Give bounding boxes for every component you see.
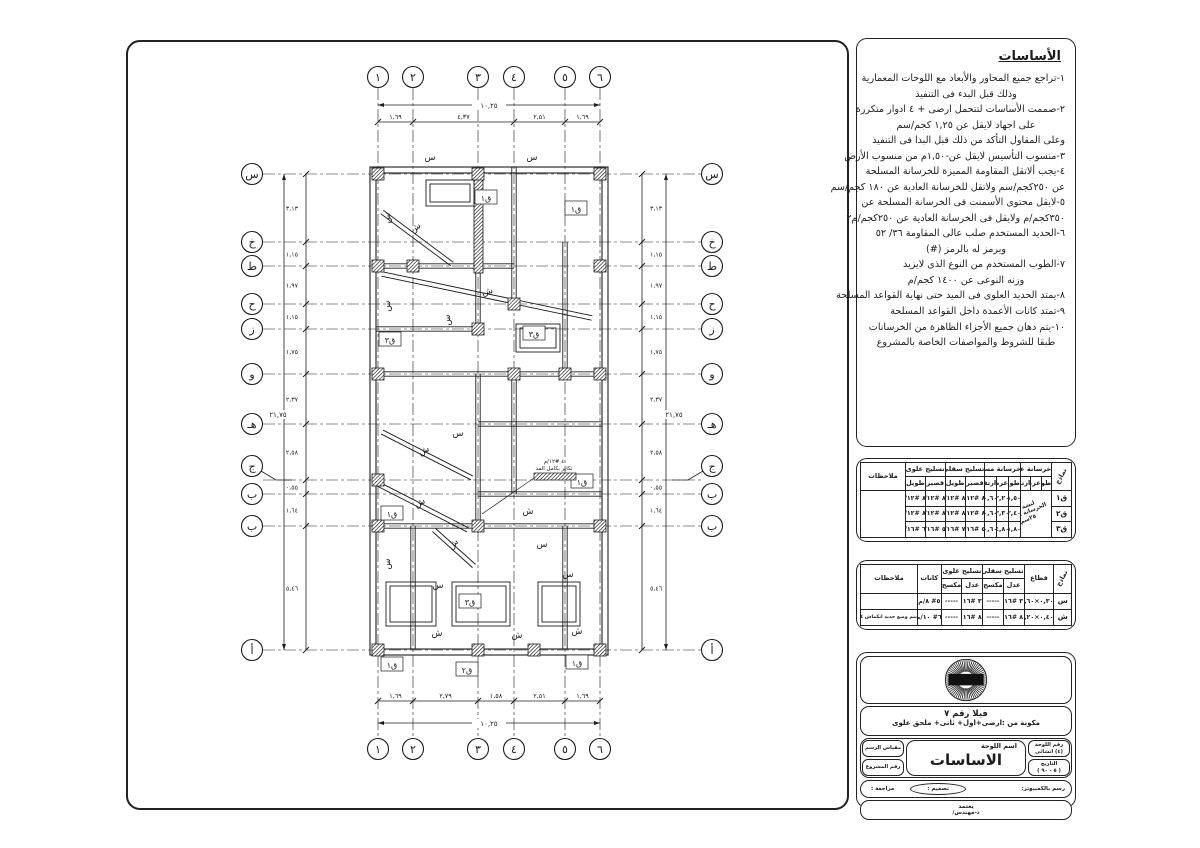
note-line: ٣٥٠كجم/م ولايقل فى الخرسانة العادية عن ٢… bbox=[867, 211, 1065, 227]
note-line: ويرمز له بالرمز (#) bbox=[867, 242, 1065, 258]
note-line: ٨-يمتد الحديد العلوى فى الميد حتى نهاية … bbox=[867, 288, 1065, 304]
svg-text:و: و bbox=[708, 368, 714, 381]
svg-text:١: ١ bbox=[375, 71, 381, 84]
company-logo-icon bbox=[943, 657, 989, 703]
sheet-name-label: اسم اللوحة bbox=[981, 742, 1017, 750]
svg-text:٢,٣٧: ٢,٣٧ bbox=[286, 396, 299, 403]
note-line: ٦-الحديد المستخدم صلب عالى المقاومة ٣٦/ … bbox=[867, 226, 1065, 242]
sub-straight: عدل bbox=[1003, 579, 1024, 593]
svg-text:٥: ٥ bbox=[562, 743, 568, 756]
title-block: فيلا رقم ٧ مكونة من :ارضى+اول+ ثانى+ ملح… bbox=[856, 652, 1076, 808]
scale-field: مقياس الرسم bbox=[862, 740, 904, 757]
col-models: نماذج bbox=[1054, 467, 1068, 485]
svg-text:ق٣: ق٣ bbox=[465, 598, 476, 607]
svg-text:ش: ش bbox=[512, 631, 523, 641]
table-row: ق١ لبشة من الخرسانة العادية ٢٥سم ١,٥٠ ٢,… bbox=[861, 491, 1072, 507]
group-top-reinf: تسليح علوى bbox=[905, 463, 945, 477]
svg-text:٠,٥٥: ٠,٥٥ bbox=[650, 484, 662, 491]
svg-text:س: س bbox=[383, 213, 393, 224]
svg-text:ز: ز bbox=[708, 323, 714, 336]
svg-text:٠,٥٥: ٠,٥٥ bbox=[286, 484, 298, 491]
svg-text:ج: ج bbox=[708, 460, 716, 473]
svg-text:١,٧٥: ١,٧٥ bbox=[650, 349, 662, 356]
sub-straight: عدل bbox=[962, 579, 983, 593]
svg-text:س: س bbox=[527, 153, 538, 163]
sub-long: طويل bbox=[905, 477, 925, 491]
sheet-name-box: اسم اللوحة الاساسات bbox=[906, 740, 1026, 776]
group-bottom-reinf: تسليح سفلى bbox=[983, 565, 1024, 579]
svg-text:٢١,٧٥: ٢١,٧٥ bbox=[665, 411, 683, 419]
svg-text:ب: ب bbox=[707, 520, 717, 533]
note-line: ١٠-يتم دهان جميع الأجزاء الظاهرة من الخر… bbox=[867, 320, 1065, 336]
svg-text:٣: ٣ bbox=[475, 743, 481, 756]
note-line: وزنه النوعى عن ١٤٠٠ كجم/م bbox=[867, 273, 1065, 289]
drawing-page: ١١٢٢٣٣٤٤٥٥٦٦سسخخططححززووهـهـججببببأأ١٠,٢… bbox=[0, 0, 1200, 848]
note-line: ٥-لايقل محتوى الأسمنت فى الخرسانة المسلح… bbox=[867, 195, 1065, 211]
note-line: ٧-الطوب المستخدم من النوع الذى لايزيد bbox=[867, 257, 1065, 273]
note-line: على اجهاد لايقل عن ١,٢٥ كجم/سم bbox=[867, 118, 1065, 134]
project-title: فيلا رقم ٧ مكونة من :ارضى+اول+ ثانى+ ملح… bbox=[860, 706, 1072, 736]
svg-text:ج: ج bbox=[248, 460, 256, 473]
svg-text:ش: ش bbox=[572, 627, 583, 637]
logo-row bbox=[860, 656, 1072, 704]
svg-text:١,٩٧: ١,٩٧ bbox=[650, 282, 663, 289]
svg-text:ط: ط bbox=[247, 260, 257, 273]
sheet-name: الاساسات bbox=[930, 751, 1002, 769]
svg-text:ز: ز bbox=[248, 323, 254, 336]
svg-text:٤: ٤ bbox=[511, 743, 517, 756]
svg-text:س: س bbox=[383, 559, 393, 570]
svg-text:ق١: ق١ bbox=[571, 205, 582, 214]
signatures-row: رسم بالكمبيوتر: تصميم : مراجعة : bbox=[860, 780, 1072, 798]
svg-text:خ: خ bbox=[708, 236, 716, 249]
date-field: التاريخ ( ٥ - ٩٠ ) bbox=[1028, 759, 1070, 776]
svg-text:ح: ح bbox=[708, 298, 716, 311]
note-line: وذلك قبل البدء فى التنفيذ bbox=[867, 87, 1065, 103]
sub-wid: عرض bbox=[997, 477, 1009, 491]
approve-label: يعتمد bbox=[861, 803, 1071, 810]
svg-text:ب: ب bbox=[247, 520, 257, 533]
svg-text:١,١٥: ١,١٥ bbox=[650, 314, 662, 321]
svg-text:أ: أ bbox=[250, 643, 253, 657]
review-label: مراجعة : bbox=[861, 786, 904, 792]
design-label: تصميم : bbox=[910, 783, 966, 795]
svg-text:ح: ح bbox=[248, 298, 256, 311]
note-line: وعلى المقاول التأكد من ذلك قبل البدا فى … bbox=[867, 133, 1065, 149]
sub-long: طويل bbox=[945, 477, 965, 491]
svg-text:٣,١٣: ٣,١٣ bbox=[286, 205, 299, 212]
svg-text:ب: ب bbox=[247, 488, 257, 501]
sub-short: قصير bbox=[925, 477, 945, 491]
svg-text:س: س bbox=[537, 540, 548, 550]
svg-text:٢١,٧٥: ٢١,٧٥ bbox=[269, 411, 287, 419]
footings-table: نماذج خرسانة عادية خرسانة مسلحة تسليح سف… bbox=[860, 462, 1072, 538]
svg-text:ق٣: ق٣ bbox=[385, 336, 396, 345]
svg-text:١,٩٧: ١,٩٧ bbox=[286, 282, 299, 289]
foundation-plan-svg: ١١٢٢٣٣٤٤٥٥٦٦سسخخططححززووهـهـججببببأأ١٠,٢… bbox=[128, 42, 847, 808]
svg-text:٦: ٦ bbox=[597, 71, 603, 84]
svg-text:ق٢: ق٢ bbox=[462, 666, 473, 675]
table-row: س ٠,٣٠×٠,٦٠ ٣ #١٦ ----- ٣ #١٦ ----- ٥# ٨… bbox=[861, 593, 1072, 609]
semelles-table-panel: نماذج قطاع تسليح سفلى تسليح علوى كانات م… bbox=[856, 560, 1076, 630]
sheet-meta-left: مقياس الرسم رقم المشروع bbox=[861, 739, 905, 777]
sub-len: طول bbox=[1041, 477, 1051, 491]
group-top-reinf: تسليح علوى bbox=[941, 565, 982, 579]
svg-text:١,١٥: ١,١٥ bbox=[286, 314, 298, 321]
svg-text:ش: ش bbox=[417, 444, 431, 458]
svg-text:ق١: ق١ bbox=[577, 478, 588, 487]
note-line: ١-تراجع جميع المحاور والأبعاد مع اللوحات… bbox=[867, 71, 1065, 87]
svg-text:٢,٣٧: ٢,٣٧ bbox=[650, 396, 663, 403]
svg-text:تكاير بكامل المد: تكاير بكامل المد bbox=[536, 465, 573, 472]
svg-text:٣: ٣ bbox=[475, 71, 481, 84]
svg-text:٢,٥١: ٢,٥١ bbox=[533, 692, 546, 700]
svg-text:ق١: ق١ bbox=[572, 659, 583, 668]
svg-text:٥: ٥ bbox=[562, 71, 568, 84]
note-line: ٢-صممت الأساسات لتتحمل ارضى + ٤ ادوار مت… bbox=[867, 102, 1065, 118]
sub-wid: عرض bbox=[1031, 477, 1041, 491]
svg-text:س: س bbox=[433, 581, 444, 591]
sub-ht: ارتفاع bbox=[985, 477, 997, 491]
svg-text:١,١٥: ١,١٥ bbox=[286, 251, 298, 258]
svg-text:ق١: ق١ bbox=[387, 661, 398, 670]
semelles-table: نماذج قطاع تسليح سفلى تسليح علوى كانات م… bbox=[860, 564, 1072, 626]
svg-text:س: س bbox=[425, 153, 436, 163]
svg-text:٢: ٢ bbox=[410, 743, 416, 756]
group-rc: خرسانة مسلحة bbox=[985, 463, 1021, 477]
svg-text:٦: ٦ bbox=[597, 743, 603, 756]
sub-bent: مكسح bbox=[983, 579, 1004, 593]
svg-text:ش: ش bbox=[481, 286, 494, 298]
engineer-label: د-مهندس/ bbox=[861, 810, 1071, 816]
col-models: نماذج bbox=[1055, 570, 1069, 588]
notes-title: الأساسات bbox=[867, 49, 1061, 64]
svg-text:س: س bbox=[563, 570, 574, 580]
col-notes: ملاحظات bbox=[861, 463, 906, 491]
svg-text:ط: ط bbox=[707, 260, 717, 273]
svg-text:٤ #١٢/م: ٤ #١٢/م bbox=[544, 459, 565, 465]
svg-text:ب: ب bbox=[707, 488, 717, 501]
svg-text:١,٦٩: ١,٦٩ bbox=[389, 113, 402, 121]
svg-text:و: و bbox=[248, 368, 254, 381]
sheet-number-field: رقم اللوحة (٤) انشائى bbox=[1028, 740, 1070, 757]
svg-text:١,٦٩: ١,٦٩ bbox=[389, 692, 402, 700]
group-bottom-reinf: تسليح سفلى bbox=[945, 463, 985, 477]
svg-text:١,٦٩: ١,٦٩ bbox=[576, 113, 589, 121]
svg-text:هـ: هـ bbox=[246, 418, 256, 431]
sub-len: طول bbox=[1009, 477, 1021, 491]
sheet-info-row: رقم اللوحة (٤) انشائى التاريخ ( ٥ - ٩٠ )… bbox=[860, 738, 1072, 778]
svg-text:١,١٥: ١,١٥ bbox=[650, 251, 662, 258]
sub-short: قصير bbox=[965, 477, 985, 491]
svg-text:ش: ش bbox=[523, 507, 534, 517]
footings-table-panel: نماذج خرسانة عادية خرسانة مسلحة تسليح سف… bbox=[856, 458, 1076, 542]
plan-sheet: ١١٢٢٣٣٤٤٥٥٦٦سسخخططححززووهـهـججببببأأ١٠,٢… bbox=[126, 40, 849, 810]
svg-text:س: س bbox=[705, 168, 718, 181]
svg-text:٢,٥١: ٢,٥١ bbox=[533, 113, 546, 121]
svg-text:١,٥٨: ١,٥٨ bbox=[490, 692, 503, 700]
svg-text:٥,٤٦: ٥,٤٦ bbox=[286, 585, 299, 592]
svg-text:ش: ش bbox=[408, 221, 423, 236]
col-notes: ملاحظات bbox=[861, 565, 918, 594]
svg-text:٣,١٣: ٣,١٣ bbox=[650, 205, 663, 212]
svg-text:٢,٥٨: ٢,٥٨ bbox=[650, 449, 663, 456]
note-line: ٣-منسوب التأسيس لايقل عن-١,٥٠م من منسوب … bbox=[867, 149, 1065, 165]
svg-text:٤,٣٧: ٤,٣٧ bbox=[457, 113, 470, 121]
svg-text:س: س bbox=[383, 301, 393, 312]
svg-text:ش: ش bbox=[432, 629, 443, 639]
note-line: عن ٢٥٠كجم/سم ولاتقل للخرسانة العادية عن … bbox=[867, 180, 1065, 196]
svg-text:١,٦٤: ١,٦٤ bbox=[650, 507, 662, 514]
svg-text:٢: ٢ bbox=[410, 71, 416, 84]
svg-text:٤: ٤ bbox=[511, 71, 517, 84]
group-plain-concrete: خرسانة عادية bbox=[1020, 463, 1051, 477]
svg-text:١,٦٤: ١,٦٤ bbox=[286, 507, 298, 514]
svg-text:١: ١ bbox=[375, 743, 381, 756]
svg-text:١٠,٢٥: ١٠,٢٥ bbox=[480, 720, 498, 728]
svg-text:خ: خ bbox=[248, 236, 256, 249]
sheet-meta-right: رقم اللوحة (٤) انشائى التاريخ ( ٥ - ٩٠ ) bbox=[1027, 739, 1071, 777]
svg-text:٢,٧٩: ٢,٧٩ bbox=[439, 692, 452, 700]
svg-text:ق١: ق١ bbox=[481, 194, 492, 203]
sub-bent: مكسح bbox=[941, 579, 962, 593]
svg-text:أ: أ bbox=[710, 643, 713, 657]
approval-row: يعتمد د-مهندس/ bbox=[860, 800, 1072, 820]
svg-text:هـ: هـ bbox=[706, 418, 716, 431]
svg-text:ش: ش bbox=[413, 496, 427, 510]
svg-text:س: س bbox=[245, 168, 258, 181]
svg-text:٢,٥٨: ٢,٥٨ bbox=[286, 449, 299, 456]
villa-number: فيلا رقم ٧ bbox=[861, 709, 1071, 719]
col-stirrups: كانات bbox=[917, 565, 941, 594]
note-line: طبقا للشروط والمواصفات الخاصة بالمشروع bbox=[867, 335, 1065, 351]
notes-panel: الأساسات ١-تراجع جميع المحاور والأبعاد م… bbox=[856, 38, 1076, 447]
svg-text:ق٣: ق٣ bbox=[529, 330, 540, 339]
svg-text:١٠,٢٥: ١٠,٢٥ bbox=[480, 102, 498, 110]
note-line: ٩-تمتد كانات الأعمدة داخل القواعد المسلح… bbox=[867, 304, 1065, 320]
svg-text:س: س bbox=[453, 429, 464, 439]
cad-by-label: رسم بالكمبيوتر: bbox=[966, 786, 1071, 792]
svg-text:ق١: ق١ bbox=[387, 510, 398, 519]
col-section: قطاع bbox=[1024, 565, 1054, 594]
villa-description: مكونة من :ارضى+اول+ ثانى+ ملحق علوى bbox=[861, 719, 1071, 727]
sub-ht: ارتفاع bbox=[1020, 477, 1030, 491]
note-line: ٤-يجب ألاتقل المقاومة المميزة للخرسانة ا… bbox=[867, 164, 1065, 180]
plain-concrete-note: لبشة من الخرسانة العادية ٢٥سم bbox=[1020, 496, 1051, 533]
svg-text:س: س bbox=[443, 315, 453, 326]
project-number-field: رقم المشروع bbox=[862, 759, 904, 776]
svg-text:٥,٤٦: ٥,٤٦ bbox=[650, 585, 663, 592]
svg-text:١,٧٥: ١,٧٥ bbox=[286, 349, 298, 356]
svg-text:١,٦٩: ١,٦٩ bbox=[576, 692, 589, 700]
table-row: ش ٠,٤٠×١,٢٠ ٨ #١٦ ----- ٨ #١٦ ----- ٦# ١… bbox=[861, 609, 1072, 625]
